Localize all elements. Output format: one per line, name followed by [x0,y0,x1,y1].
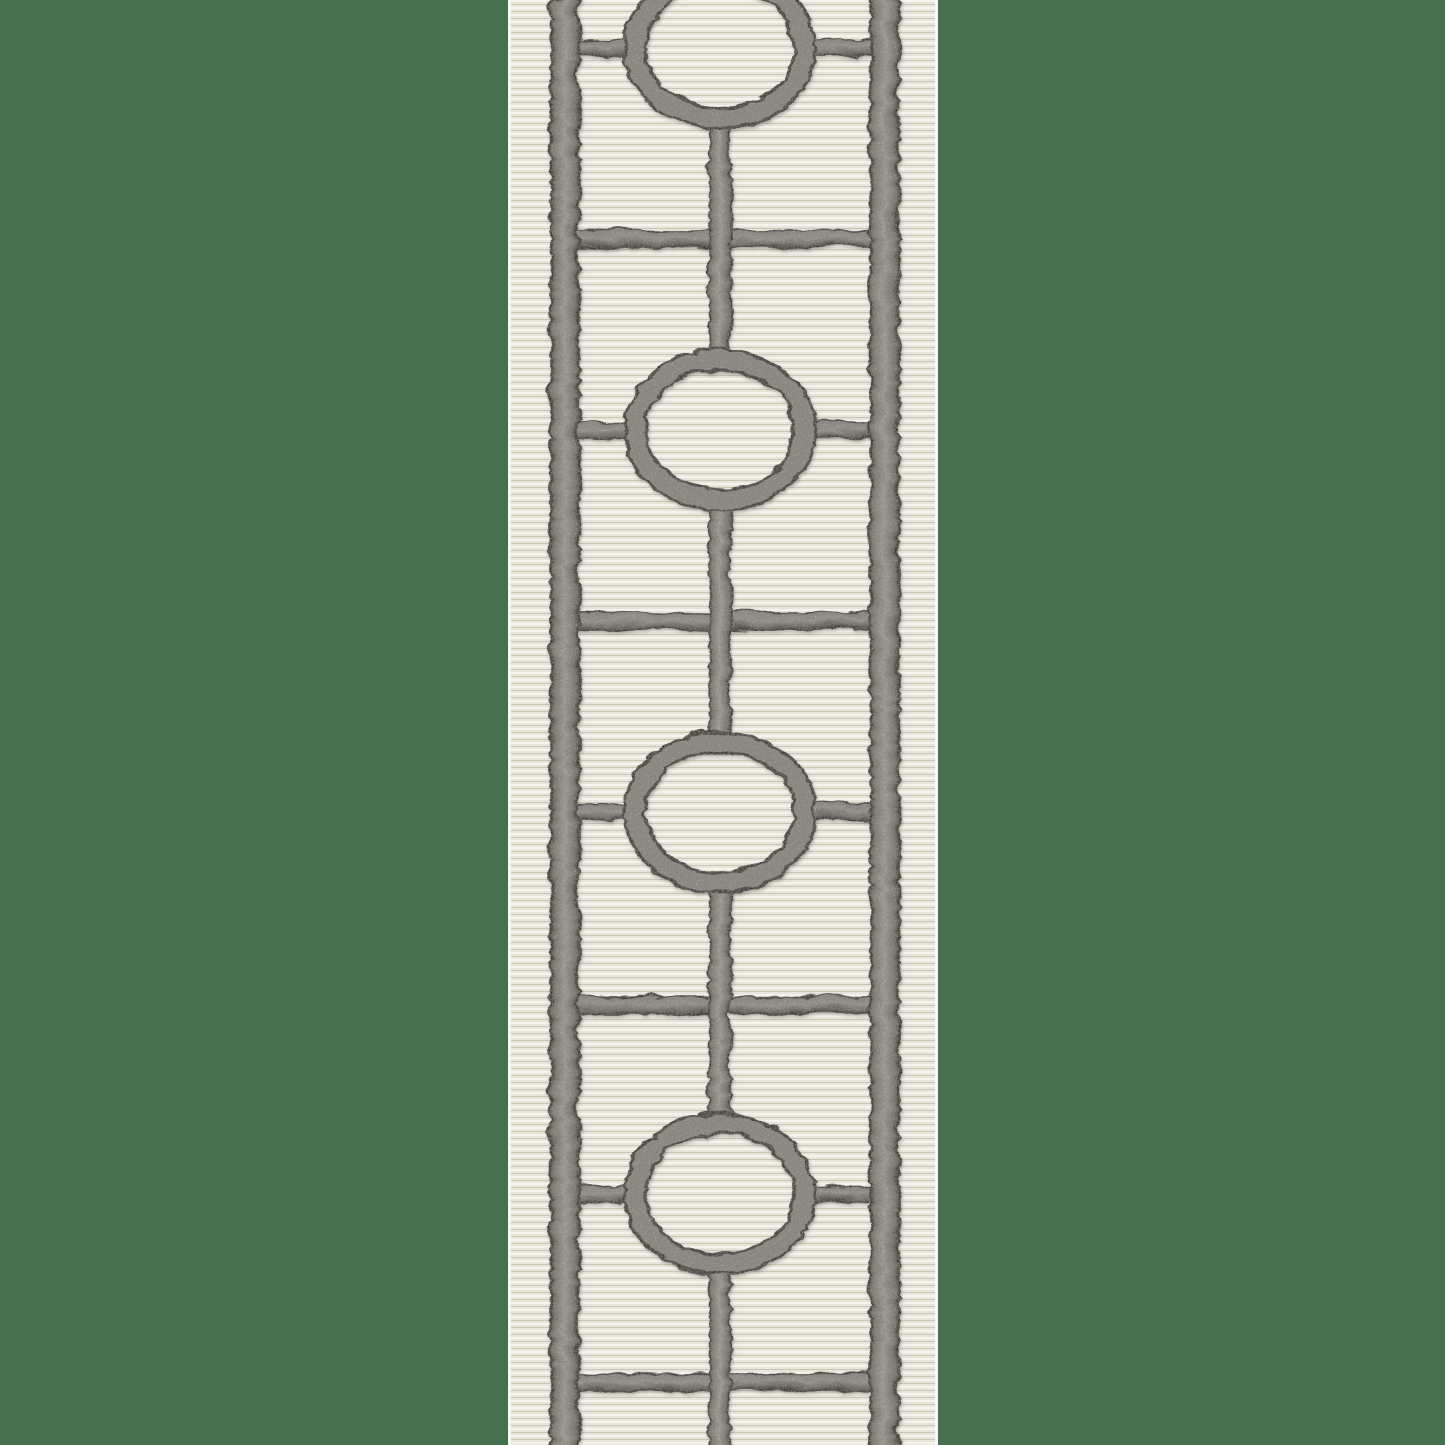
embroidery-connector-segment [707,1265,729,1445]
embroidery-band-right [869,0,897,1445]
image-background [0,0,1445,1445]
embroidery-pattern [508,0,938,1445]
embroidery-ring [633,358,803,498]
embroidery-ring-outer-edge [623,1112,813,1272]
embroidery-ring-inner-edge [643,368,793,488]
embroidery-ring [633,740,803,880]
tape-edge-highlight-left [508,0,511,1445]
embroidery-ring [633,1122,803,1262]
embroidery-ring-inner-edge [643,0,793,106]
embroidery-connector-segment [707,119,729,355]
embroidery-band-left [549,0,577,1445]
fabric-trim-tape [508,0,938,1445]
embroidery-ring-inner-edge [643,1132,793,1252]
embroidery-ring [633,0,803,116]
embroidery-ring-outer-edge [623,730,813,890]
embroidery-ring-outer-edge [623,348,813,508]
tape-edge-highlight-right [935,0,938,1445]
embroidery-ring-inner-edge [643,750,793,870]
embroidery-connector-segment [707,501,729,737]
embroidery-connector-segment [707,883,729,1119]
